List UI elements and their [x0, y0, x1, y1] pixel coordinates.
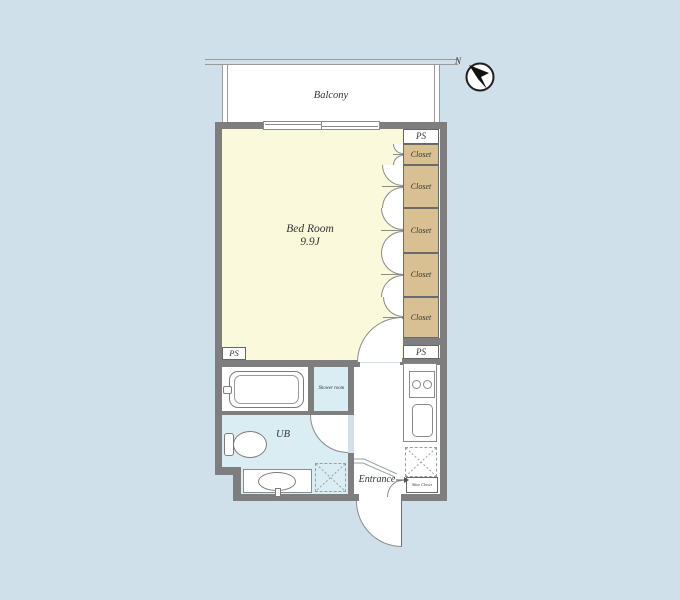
closet-5: Closet — [403, 297, 439, 338]
balcony-wall — [439, 64, 440, 122]
shoe-closet-label: Shoe Closet — [412, 483, 432, 488]
balcony-wall — [434, 64, 435, 122]
bedroom-name: Bed Room — [245, 223, 375, 236]
stove — [409, 371, 435, 398]
closet-1: Closet — [403, 144, 439, 165]
closet-3: Closet — [403, 208, 439, 253]
ps-box-top-right: PS — [403, 129, 439, 144]
shower-room-text: Shower room — [318, 385, 344, 391]
bedroom-bottom-wall — [215, 360, 360, 367]
balcony-railing — [205, 64, 458, 65]
closet-door-line — [381, 230, 403, 231]
entrance-tile — [405, 447, 437, 477]
bottom-wall-left — [233, 494, 359, 501]
balcony-wall — [227, 64, 228, 122]
window-center-tick — [321, 121, 322, 130]
closet-2: Closet — [403, 165, 439, 208]
balcony-railing — [205, 59, 458, 60]
stove-burner — [412, 380, 421, 389]
closet-4: Closet — [403, 253, 439, 297]
bedroom-label: Bed Room 9.9J — [245, 223, 375, 253]
bathtub-inner — [234, 375, 299, 404]
closet-door-line — [382, 186, 403, 187]
closet-door-line — [393, 154, 403, 155]
balcony-wall — [222, 64, 223, 122]
washroom-tile — [315, 463, 346, 492]
ub-label: UB — [263, 428, 303, 442]
floor-plan: Balcony N PS PS PS Closet Closet Closet … — [0, 0, 680, 600]
exterior-wall-left — [215, 122, 222, 475]
compass-north-label: N — [454, 56, 462, 66]
ps-box-bottom-left: PS — [222, 347, 246, 360]
exterior-wall-right — [440, 122, 447, 501]
stove-burner — [423, 380, 432, 389]
closet-ps-divider-wall — [403, 338, 440, 345]
window-pane-line — [322, 126, 378, 127]
washbasin-tap — [275, 488, 281, 497]
bottom-wall-right — [401, 494, 447, 501]
closet-door-line — [381, 274, 403, 275]
toilet-bowl — [233, 431, 267, 458]
shower-room-label: Shower room — [311, 381, 351, 395]
entrance-door-arc — [356, 501, 402, 547]
balcony-label: Balcony — [281, 89, 381, 103]
kitchen-sink — [412, 404, 433, 437]
north-compass-icon: N — [452, 50, 508, 106]
bathtub-faucet — [223, 386, 232, 394]
ps-box-bottom-right: PS — [403, 345, 439, 359]
shoe-closet: Shoe Closet — [406, 477, 438, 493]
window-pane-line — [265, 124, 322, 125]
bedroom-size: 9.9J — [245, 236, 375, 249]
